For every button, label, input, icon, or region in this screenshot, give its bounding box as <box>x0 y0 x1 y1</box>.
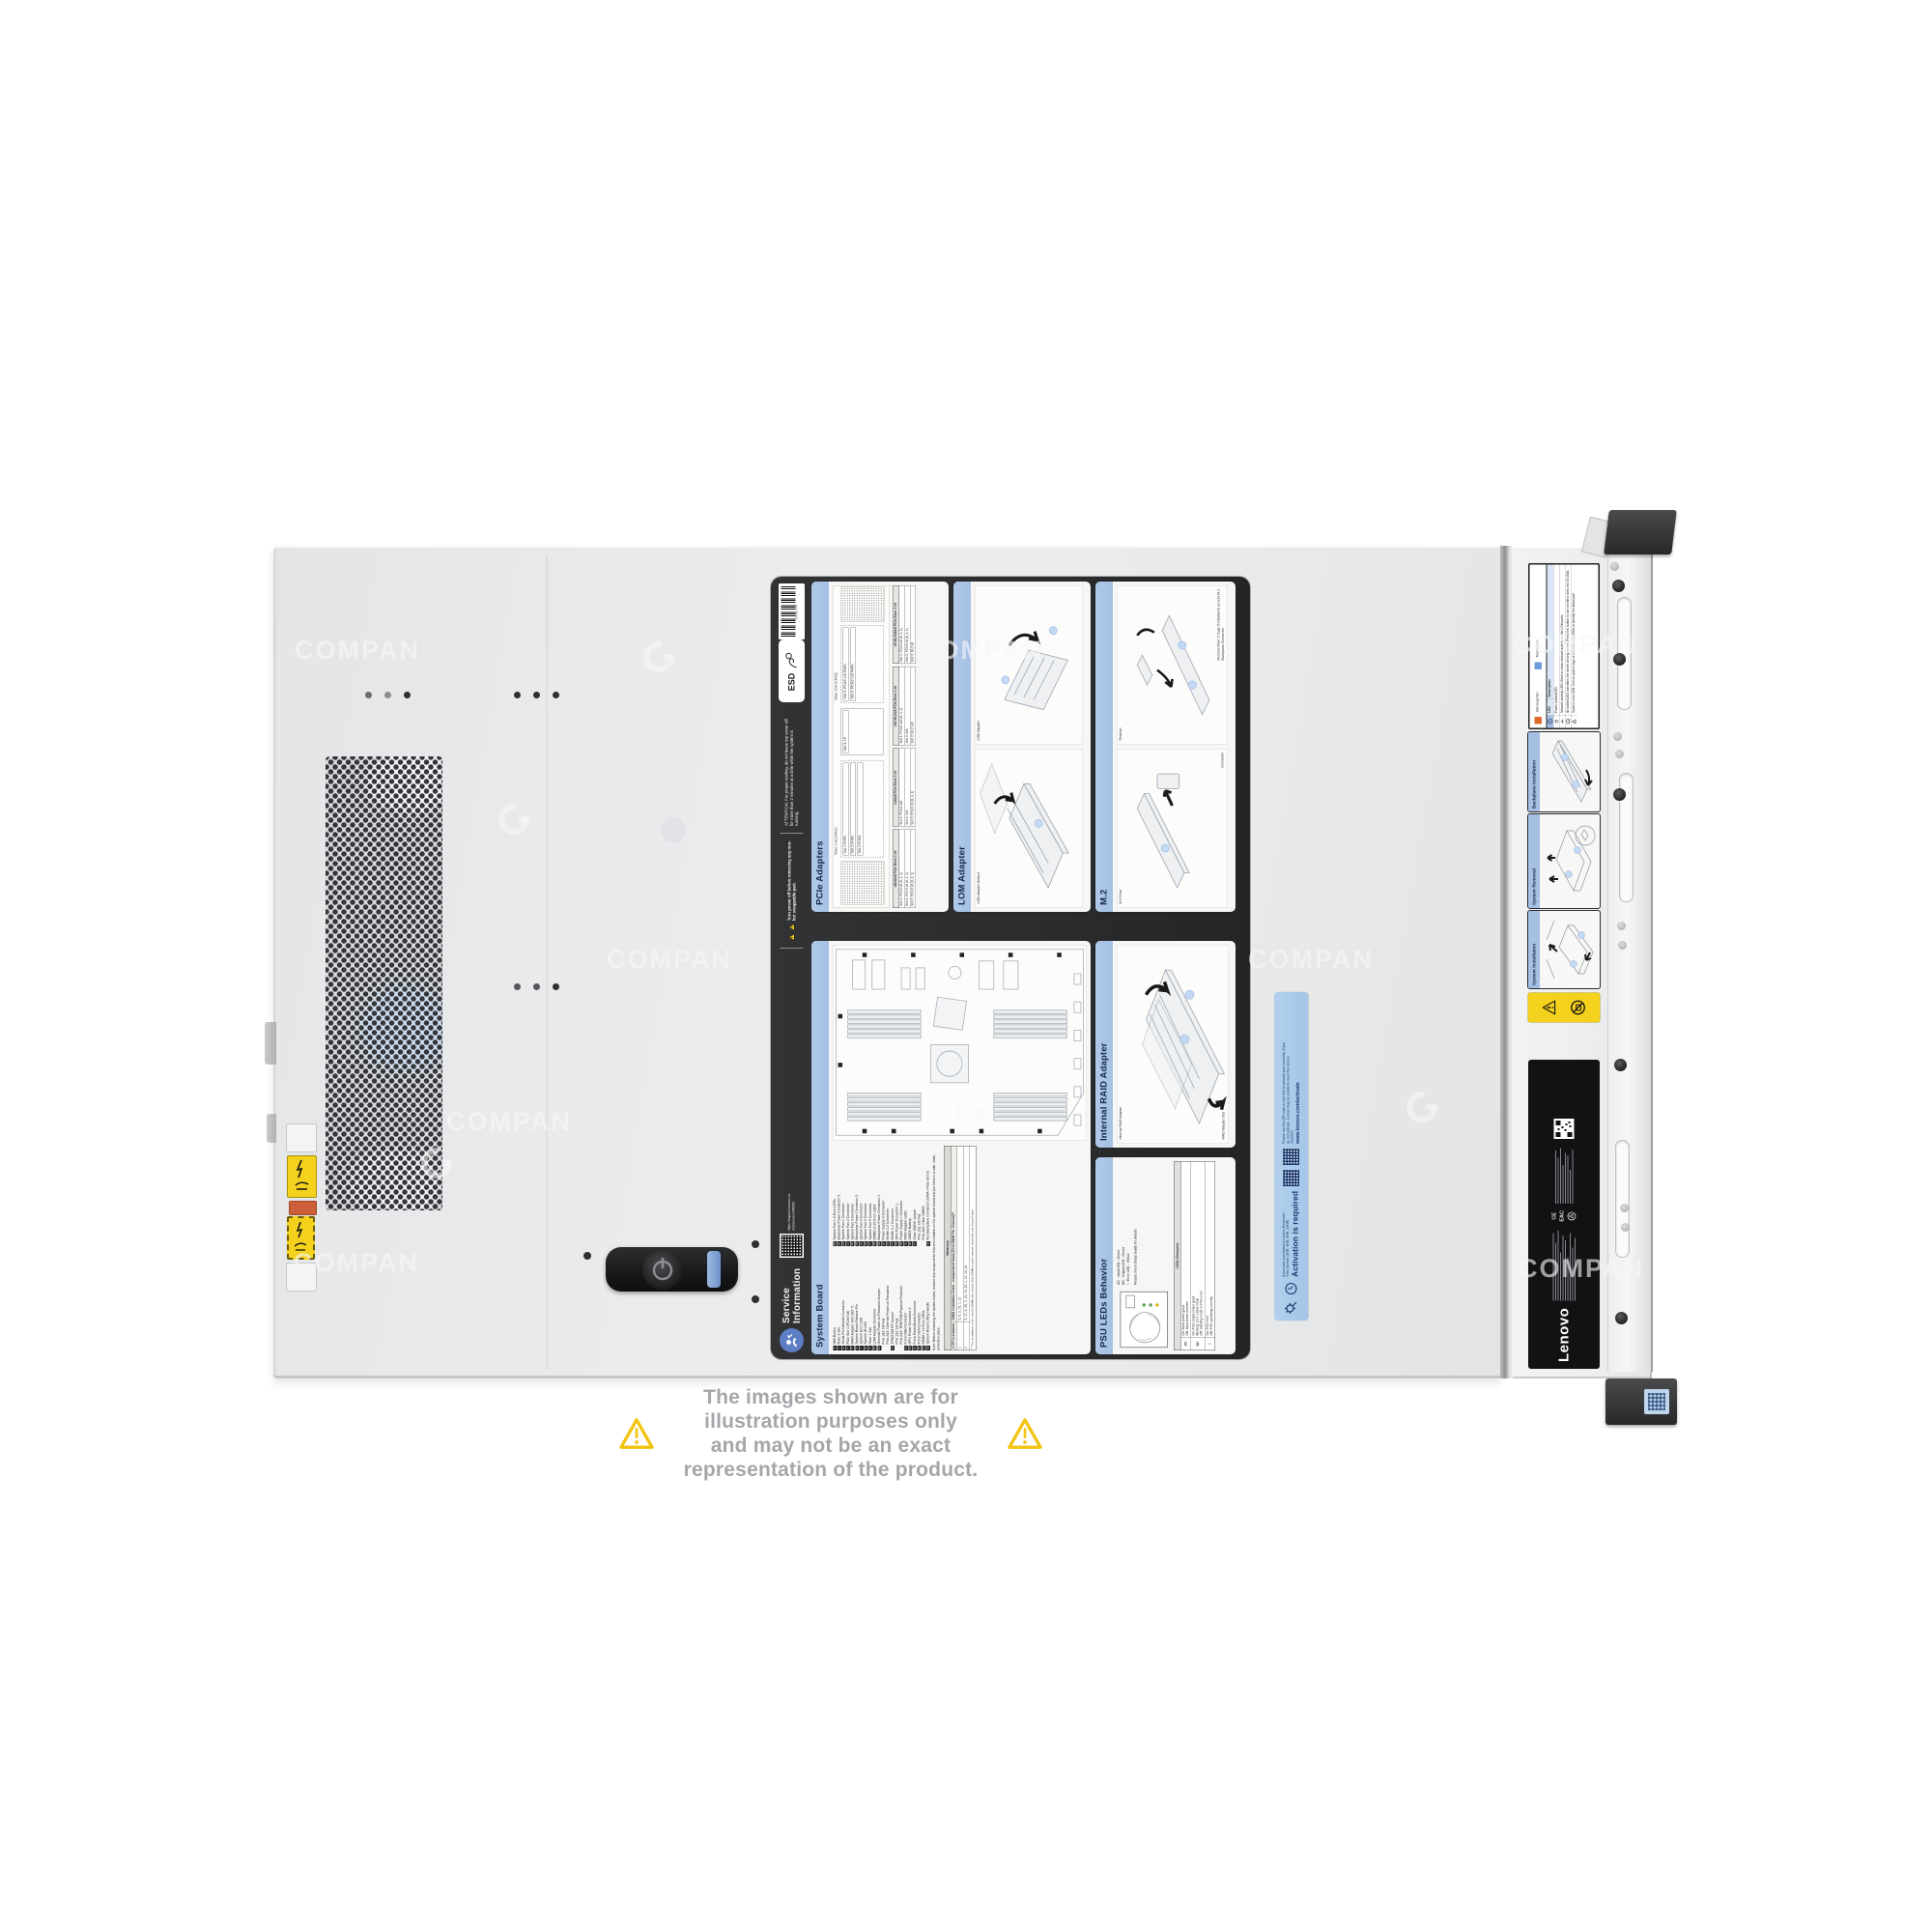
psu-diagram <box>1117 1289 1171 1350</box>
id-icon: ID <box>1566 715 1572 728</box>
warning-label-dashed <box>287 1216 315 1260</box>
front-panel-labels: Lenovo CE EAC <box>1524 546 1604 1377</box>
m2-illustration-1: M.2 Drive Connector <box>1117 749 1228 908</box>
hot-swap-swatch <box>1534 717 1542 724</box>
support-url: https://support.lenovo.com/p/servers/SR6… <box>787 1190 796 1231</box>
m2-card: M.2 M.2 Drive <box>1095 582 1236 912</box>
service-person-icon <box>780 1328 804 1352</box>
screw-hole <box>1621 1223 1630 1232</box>
barcode: SR650 SVC <box>779 583 805 639</box>
screw-hole <box>404 692 411 698</box>
lenovo-product-label: Lenovo CE EAC <box>1528 1060 1600 1369</box>
gear-magnifier-icon <box>1284 1300 1298 1315</box>
cover-release-latch <box>606 1247 738 1292</box>
lom-adapter-card: LOM Adapter <box>953 582 1091 912</box>
m2-drive-label: M.2 Drive <box>1120 889 1123 905</box>
screw <box>1613 653 1626 666</box>
system-board-card: System Board 1NMI Button2Riser 2 Slot3Se… <box>811 941 1091 1354</box>
barcode-bars <box>781 586 796 637</box>
system-error-icon <box>1572 715 1577 728</box>
label-qr-code <box>1554 1119 1575 1139</box>
system-board-callouts-right: 19System Fan 1-6 Error LEDs20Backplane P… <box>833 1146 930 1246</box>
m2-retainer-label: Retainer <box>1120 726 1123 741</box>
touch-point-swatch <box>1534 663 1542 670</box>
memory-rows: 15, 8, 3, 10, 1, 1225, 17, 8, 20, 3, 15,… <box>957 1147 970 1350</box>
screw-hole <box>553 692 559 698</box>
warning-triangle-icon <box>787 934 797 941</box>
disclaimer-line-1: The images shown are for illustration pu… <box>665 1385 997 1434</box>
warning-triangle-icon <box>618 1417 655 1450</box>
lom-label-1: LOM Adapter Airduct <box>978 871 981 904</box>
svg-text:ID: ID <box>1568 721 1570 724</box>
screw <box>1613 788 1626 801</box>
activation-small-text: If you have purchased a Lenovo Response … <box>1282 1205 1291 1277</box>
divider <box>781 948 804 949</box>
activation-url: www.lenovo.com/activate <box>1295 1042 1299 1144</box>
clock-icon <box>1285 1282 1298 1295</box>
system-removal-card: System Removal <box>1528 814 1600 908</box>
psu-led-rows: ACOn: Input power good Off: Input power … <box>1181 1162 1215 1350</box>
support-qr-code <box>780 1234 804 1258</box>
system-board-note: Note: Before removing the system board, … <box>933 1146 941 1350</box>
pcie-riser-table-4: x8 ML2/x8/x8 PCIe Riser 1 kit Slot 1: PC… <box>893 585 916 664</box>
power-icon <box>642 1249 683 1290</box>
cover-seam <box>546 555 548 1369</box>
memory-table: Memory # CPUs Installed DIMM Installatio… <box>944 1146 976 1350</box>
help-icon: ? <box>1548 715 1554 728</box>
internal-raid-card: Internal RAID Adapter <box>1095 941 1236 1148</box>
latch-blue-touch-point <box>707 1251 721 1288</box>
latch-disc <box>642 1249 683 1290</box>
psu-bays <box>841 862 885 905</box>
activation-body-text: Please use the QR code or web link to ac… <box>1283 1042 1294 1144</box>
pcie-adapters-card: PCIe Adapters Riser 1 kit (CPU1) Riser 2… <box>811 582 949 912</box>
riser2-slots: Slot 5: PCIe3 x16 FH/FL Slot 6: PCIe3 x1… <box>841 626 884 703</box>
psu-leds-card: PSU LEDs Behavior AC : Input LED - Green… <box>1095 1157 1236 1354</box>
power-icon <box>1554 715 1560 728</box>
system-board-callouts-left: 1NMI Button2Riser 2 Slot3Serial-Port-Mod… <box>833 1250 930 1350</box>
screw <box>1614 1059 1627 1071</box>
screw-hole <box>752 1295 759 1303</box>
screw-hole <box>553 983 559 990</box>
screw-hole <box>1613 732 1622 741</box>
m2-illustration-2: Retainer Remove Riser 2 Cage if installe… <box>1117 585 1228 745</box>
m2-connector-label: Connector <box>1221 752 1225 769</box>
raid-illustration: Internal RAID Adapter RAID Adapter Slot <box>1117 945 1229 1144</box>
screw-hole <box>514 983 521 990</box>
pcie-riser-table-2: x16/x8 PCIe Riser 1 kit Slot 1: PCIe3 x1… <box>893 749 916 827</box>
cover-front-seam <box>1500 546 1513 1378</box>
lightning-hand-icon <box>289 1218 313 1258</box>
disclaimer-line-2: and may not be an exact representation o… <box>665 1434 997 1482</box>
screw-hole <box>1618 941 1627 950</box>
rail-slot <box>1615 1140 1630 1258</box>
riser2-label: Riser 2 kit (CPU2) <box>835 672 838 699</box>
certification-marks: CE EAC <box>1551 1210 1577 1222</box>
warning-triangle-icon <box>787 923 797 930</box>
esd-wrist-strap-icon <box>784 651 799 670</box>
pcie-riser-table-1: x8/x8/x8 PCIe Riser 1 kit Slot 1: PCIe3 … <box>893 830 916 908</box>
vent-perforation <box>326 756 442 1210</box>
esd-badge: ESD <box>779 639 805 702</box>
service-label-title: Service Information <box>781 1268 803 1323</box>
system-installation-illustration <box>1540 911 1600 988</box>
label-micro-text <box>1555 1146 1574 1204</box>
m2-note: Remove Riser 2 Cage if installed to acce… <box>1217 588 1226 661</box>
pcie-card-title: PCIe Adapters <box>811 582 829 912</box>
product-photo-scene: Service Information https://support.leno… <box>0 0 1932 1932</box>
raid-label-1: Internal RAID Adapter <box>1120 1105 1123 1140</box>
divider <box>781 833 804 834</box>
screw-hole <box>533 983 540 990</box>
psu-vent-area <box>326 756 442 1210</box>
screw-hole <box>1610 562 1619 571</box>
system-board-title: System Board <box>811 941 829 1354</box>
no-stacking-icon <box>1570 1000 1586 1016</box>
front-led-legend: Hot swap fan Touch point ? LED Descripti… <box>1528 563 1600 729</box>
screw-hole <box>583 1252 591 1260</box>
screw-hole <box>1615 750 1624 758</box>
rack-latch-bottom <box>1605 1378 1677 1425</box>
riser1-label: Riser 1 kit (CPU1) <box>835 827 838 854</box>
lom-illustration-1: LOM Adapter Airduct <box>975 749 1083 908</box>
hot-swap-label: Hot swap fan <box>1536 687 1540 712</box>
service-label-header: Service Information https://support.leno… <box>776 583 808 1352</box>
warning-label-electrical <box>287 1155 317 1198</box>
lenovo-logo: Lenovo <box>1556 1308 1573 1362</box>
touch-point-label: Touch point <box>1536 633 1540 658</box>
activation-qr-2 <box>1283 1149 1299 1165</box>
screw-hole <box>1617 922 1626 930</box>
disclaimer: The images shown are for illustration pu… <box>618 1385 1043 1482</box>
pcie-riser-table-3: x16 ML2/x8 PCIe Riser 1 kit Slot 1: PCIe… <box>893 667 916 745</box>
activation-title: Activation is required <box>1291 1191 1300 1277</box>
warning-label-small <box>289 1201 317 1215</box>
slot4-area: Slot 4: LP <box>841 709 884 755</box>
system-installation-card: System Installation <box>1528 911 1600 988</box>
backplane-installation-card: Backplane Installation <box>1528 732 1600 811</box>
rear-chassis-diagram: Riser 1 kit (CPU1) Riser 2 kit (CPU2) Sl… <box>833 585 890 908</box>
screw-hole <box>752 1240 759 1248</box>
lightning-hand-icon <box>288 1156 316 1197</box>
system-removal-illustration <box>1540 814 1600 908</box>
m2-card-title: M.2 <box>1095 582 1113 912</box>
network-icon <box>1560 715 1566 728</box>
chassis-pin <box>267 1114 276 1143</box>
psu-note: Please check Setup Guide for details. <box>1134 1229 1138 1285</box>
screw-hole <box>1620 1204 1629 1212</box>
service-information-label: Service Information https://support.leno… <box>771 577 1250 1359</box>
psu-card-title: PSU LEDs Behavior <box>1095 1157 1113 1354</box>
raid-label-2: RAID Adapter Slot <box>1222 1111 1226 1140</box>
warning-triangle-icon <box>1542 1000 1556 1016</box>
screw-hole <box>533 692 540 698</box>
screw <box>1612 580 1625 592</box>
chassis-hinge-nub <box>265 1022 276 1065</box>
screw-hole <box>384 692 391 698</box>
lom-illustration-2: LOM Adapter <box>975 585 1083 745</box>
recycle-icon <box>1567 1211 1577 1221</box>
attention-text: ATTENTION: For proper cooling, do not le… <box>784 715 800 826</box>
warning-triangle-icon <box>1007 1417 1043 1450</box>
backplane-installation-illustration <box>1540 732 1600 811</box>
fan-grid <box>841 587 885 622</box>
screw <box>1615 1312 1628 1324</box>
psu-leds-table: LEDs Behavior ACOn: Input power good Off… <box>1174 1161 1215 1350</box>
riser1-slots: Slot 1 FH/FL Slot 2 FH/FL Slot 3 FH/HL <box>841 761 884 858</box>
system-board-diagram <box>833 945 1087 1141</box>
psu-led-labels: AC : Input LED - Green DC : Output LED -… <box>1117 1229 1131 1285</box>
latch-qr-label <box>1644 1389 1669 1414</box>
svg-text:?: ? <box>1548 721 1552 723</box>
lom-label-2: LOM Adapter <box>978 720 981 742</box>
activation-sticker: If you have purchased a Lenovo Response … <box>1274 992 1308 1321</box>
label-micro-text <box>1552 1229 1576 1301</box>
raid-card-title: Internal RAID Adapter <box>1095 941 1113 1148</box>
lom-card-title: LOM Adapter <box>953 582 971 912</box>
activation-qr-1 <box>1283 1170 1299 1186</box>
power-off-warning: Turn power off before removing any non-h… <box>786 840 797 941</box>
rating-label <box>286 1263 317 1292</box>
rack-latch-top <box>1604 510 1677 554</box>
screw-hole <box>514 692 521 698</box>
front-warning-label <box>1528 993 1600 1022</box>
screw-hole <box>365 692 372 698</box>
rating-label <box>286 1123 317 1152</box>
